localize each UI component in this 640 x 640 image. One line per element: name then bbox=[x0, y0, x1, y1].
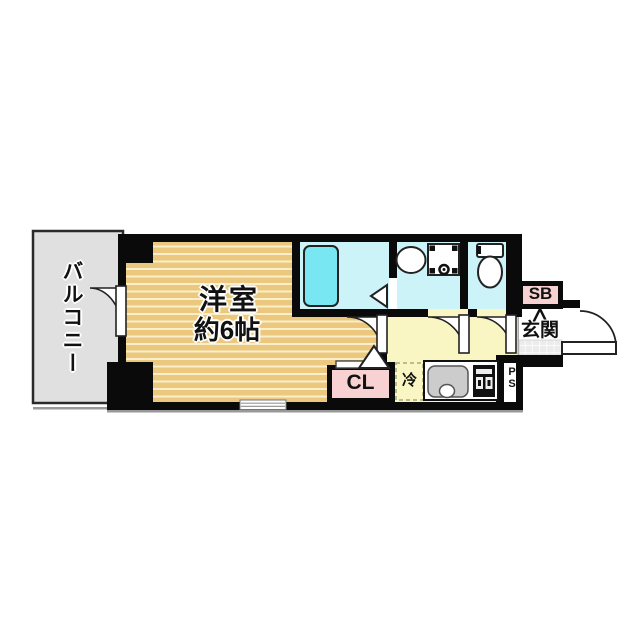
stove bbox=[473, 365, 495, 397]
room-size-label: 約6帖 bbox=[163, 317, 291, 344]
wall-mid-a bbox=[292, 309, 428, 317]
shoebox-label: SB bbox=[520, 285, 561, 303]
entrance-tile-floor bbox=[519, 340, 562, 355]
window-symbol bbox=[240, 400, 286, 410]
wall-left-upper bbox=[118, 242, 126, 288]
wall-washroom-toilet bbox=[460, 242, 468, 309]
wall-shadow-line bbox=[107, 410, 523, 413]
toilet bbox=[477, 244, 503, 288]
fridge-label: 冷 bbox=[396, 373, 423, 389]
bathtub bbox=[304, 246, 338, 306]
entrance-label: 玄関 bbox=[515, 321, 565, 341]
washing-machine-pan bbox=[428, 244, 459, 275]
wall-bottom bbox=[107, 402, 523, 410]
floor-plan: バルコニー 洋室 約6帖 CL 冷 SB 玄関 PS bbox=[0, 0, 640, 640]
washbasin bbox=[397, 247, 426, 273]
pipe-space-label: PS bbox=[503, 366, 517, 400]
wall-top bbox=[118, 234, 520, 242]
washroom-door-leaf bbox=[459, 315, 469, 353]
room-name-label: 洋室 bbox=[168, 285, 290, 314]
closet-label: CL bbox=[329, 372, 392, 394]
sink-drain bbox=[440, 385, 455, 398]
wall-bathroom-left bbox=[292, 242, 300, 317]
room-door-leaf bbox=[377, 315, 387, 353]
balcony-label: バルコニー bbox=[54, 260, 82, 410]
entrance-door-leaf bbox=[562, 342, 616, 354]
balcony-door-leaf bbox=[116, 286, 126, 336]
